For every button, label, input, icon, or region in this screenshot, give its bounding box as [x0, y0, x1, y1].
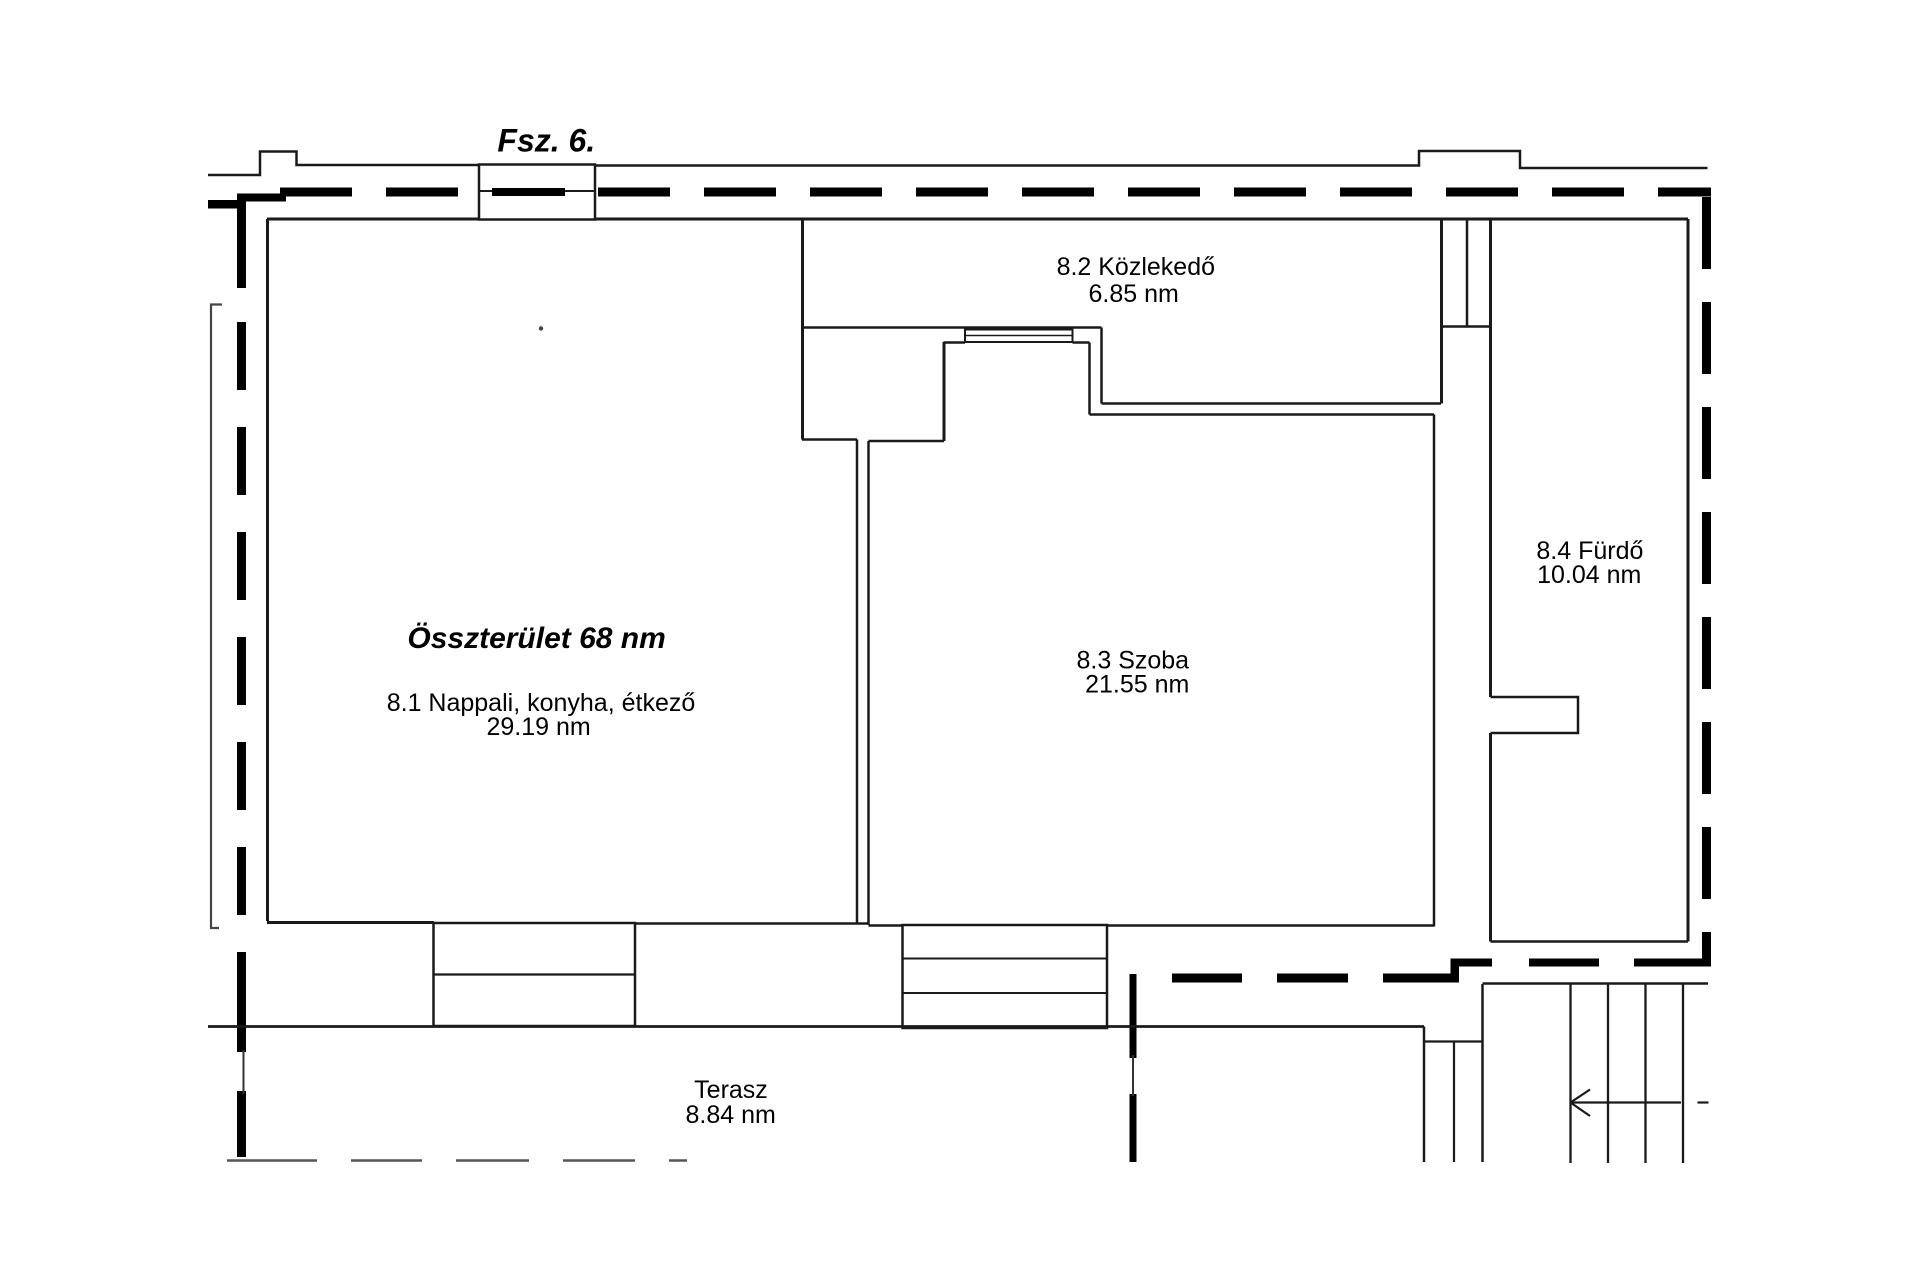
svg-text:29.19 nm: 29.19 nm	[486, 713, 590, 741]
svg-text:10.04 nm: 10.04 nm	[1537, 561, 1641, 589]
svg-text:Fsz. 6.: Fsz. 6.	[497, 123, 595, 159]
svg-text:Összterület 68 nm: Összterület 68 nm	[407, 622, 665, 655]
svg-text:6.85 nm: 6.85 nm	[1089, 280, 1179, 308]
svg-text:21.55 nm: 21.55 nm	[1085, 671, 1189, 699]
svg-text:8.84 nm: 8.84 nm	[686, 1101, 776, 1129]
svg-text:8.2 Közlekedő: 8.2 Közlekedő	[1057, 253, 1215, 281]
